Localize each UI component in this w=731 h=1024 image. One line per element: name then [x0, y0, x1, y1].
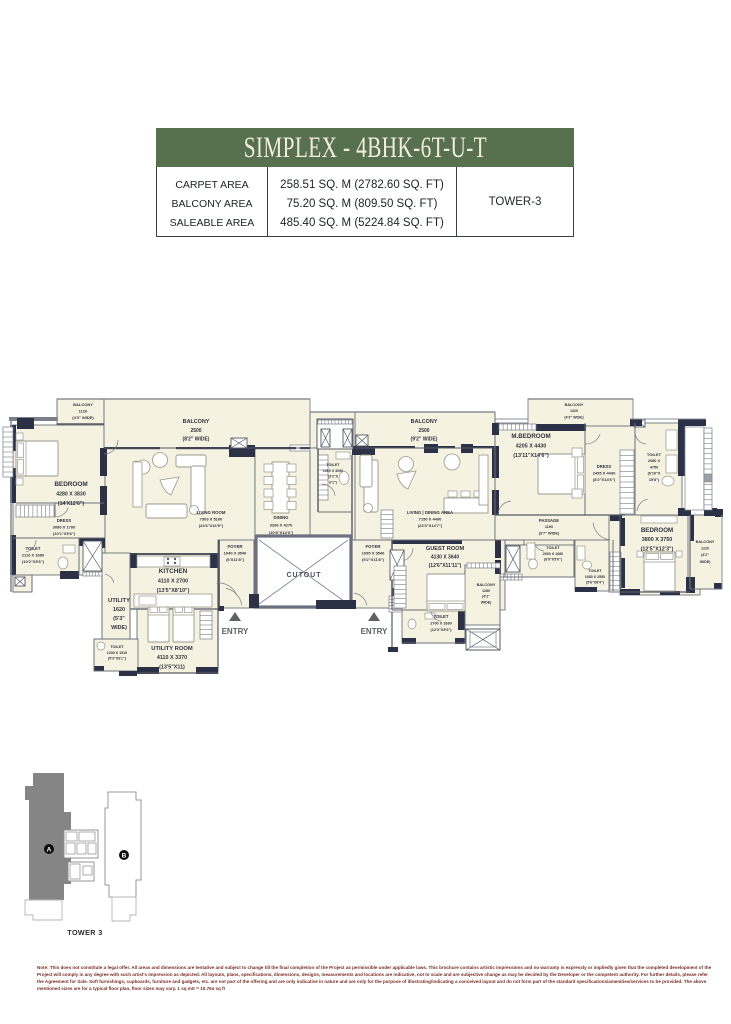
svg-text:(10'2"X5'6"): (10'2"X5'6"): [22, 559, 45, 564]
svg-text:4130 X 3640: 4130 X 3640: [431, 555, 460, 561]
svg-text:(8'9"X5'6"): (8'9"X5'6"): [544, 558, 563, 562]
svg-text:(6'10"X: (6'10"X: [648, 472, 661, 476]
svg-text:6'1"): 6'1"): [329, 480, 338, 484]
svg-text:BEDROOM: BEDROOM: [641, 527, 673, 534]
svg-text:(13'11"X14'6"): (13'11"X14'6"): [513, 453, 549, 459]
svg-text:4110 X 2700: 4110 X 2700: [158, 578, 188, 584]
svg-text:4280 X 3830: 4280 X 3830: [56, 492, 86, 498]
svg-text:(13'5"X11): (13'5"X11): [159, 664, 185, 670]
svg-text:7150 X 4490: 7150 X 4490: [419, 517, 442, 522]
svg-text:(5'2"X11'8"): (5'2"X11'8"): [362, 557, 385, 562]
svg-text:UTILITY ROOM: UTILITY ROOM: [151, 646, 193, 652]
svg-text:1330 X 1510: 1330 X 1510: [107, 651, 127, 655]
svg-text:(13'5"X8'10"): (13'5"X8'10"): [157, 588, 190, 594]
svg-text:FOYER: FOYER: [365, 544, 381, 549]
svg-text:1040 X 3540: 1040 X 3540: [224, 551, 247, 556]
svg-text:A: A: [47, 847, 52, 854]
svg-text:15'8"): 15'8"): [649, 478, 660, 482]
svg-text:GUEST ROOM: GUEST ROOM: [426, 546, 465, 552]
svg-text:LIVING ROOM: LIVING ROOM: [197, 510, 226, 515]
svg-text:(5'3"X6'1"): (5'3"X6'1"): [108, 657, 127, 661]
svg-text:UTILITY: UTILITY: [108, 598, 130, 604]
svg-text:WIDE): WIDE): [111, 625, 127, 631]
svg-text:BALCONY: BALCONY: [565, 403, 584, 407]
svg-text:(14'X12'6"): (14'X12'6"): [58, 501, 85, 507]
svg-text:(12'3"X5'6"): (12'3"X5'6"): [430, 628, 452, 632]
svg-text:(12'5"X12'3"): (12'5"X12'3"): [641, 546, 674, 552]
svg-text:ENTRY: ENTRY: [222, 627, 249, 636]
svg-text:(6'X11'8"): (6'X11'8"): [226, 557, 244, 562]
svg-text:TOILET: TOILET: [326, 463, 340, 467]
svg-text:(4'3" WIDE): (4'3" WIDE): [564, 415, 584, 419]
svg-text:(4'2": (4'2": [701, 553, 709, 557]
svg-text:1095 X 3540: 1095 X 3540: [362, 551, 385, 556]
svg-text:BEDROOM: BEDROOM: [54, 481, 87, 488]
svg-text:BALCONY: BALCONY: [73, 402, 93, 407]
svg-text:BALCONY: BALCONY: [411, 419, 438, 425]
svg-text:(10'8"X14'0"): (10'8"X14'0"): [269, 530, 294, 535]
svg-text:4110 X 3370: 4110 X 3370: [157, 655, 187, 661]
svg-text:1680 X 2550: 1680 X 2550: [585, 575, 605, 579]
svg-text:TOWER 3: TOWER 3: [67, 928, 102, 937]
svg-text:TOILET: TOILET: [588, 569, 602, 573]
svg-text:(8'2"X14'6"): (8'2"X14'6"): [593, 477, 616, 482]
svg-text:2700 X 1680: 2700 X 1680: [430, 621, 452, 625]
svg-text:DRESS: DRESS: [597, 464, 612, 469]
svg-text:1060 X 3050: 1060 X 3050: [323, 469, 343, 473]
svg-text:(10'1"X5'6"): (10'1"X5'6"): [53, 531, 76, 536]
svg-text:(5'3": (5'3": [113, 616, 125, 622]
svg-text:(23'3"X14'7"): (23'3"X14'7"): [418, 523, 443, 528]
svg-text:DRESS: DRESS: [57, 518, 72, 523]
svg-text:2660 X 1680: 2660 X 1680: [543, 552, 563, 556]
svg-text:FOYER: FOYER: [227, 544, 243, 549]
svg-text:WIDE): WIDE): [700, 560, 711, 564]
svg-text:4205 X 4430: 4205 X 4430: [516, 444, 547, 450]
svg-text:(8'2" WIDE): (8'2" WIDE): [183, 437, 210, 443]
svg-text:TOILET: TOILET: [546, 546, 560, 550]
svg-text:WIDE): WIDE): [481, 600, 492, 604]
svg-text:1280: 1280: [482, 589, 490, 593]
svg-text:2500: 2500: [418, 428, 429, 434]
svg-text:CUTOUT: CUTOUT: [286, 572, 321, 579]
svg-text:(5'6"X8'4"): (5'6"X8'4"): [586, 581, 605, 585]
svg-text:4750: 4750: [650, 465, 658, 469]
svg-text:3266 X 4270: 3266 X 4270: [270, 522, 293, 527]
svg-text:1220: 1220: [701, 547, 709, 551]
svg-text:(3'2"X: (3'2"X: [328, 475, 339, 479]
svg-text:2080 X: 2080 X: [648, 459, 661, 463]
svg-text:KITCHEN: KITCHEN: [159, 568, 188, 575]
svg-text:2495 X 4430: 2495 X 4430: [593, 471, 616, 476]
svg-text:1100: 1100: [545, 525, 553, 529]
svg-text:1620: 1620: [113, 607, 125, 613]
svg-text:M.BEDROOM: M.BEDROOM: [511, 433, 550, 440]
svg-text:BALCONY: BALCONY: [183, 419, 210, 425]
svg-text:1120: 1120: [79, 408, 88, 413]
svg-text:(3'7" WIDE): (3'7" WIDE): [539, 531, 560, 535]
svg-text:2500: 2500: [190, 428, 201, 434]
svg-text:DINING: DINING: [273, 515, 289, 520]
svg-text:3080 X 1700: 3080 X 1700: [53, 525, 76, 530]
svg-text:TOILET: TOILET: [26, 546, 41, 551]
svg-text:3800 X 3750: 3800 X 3750: [642, 537, 673, 543]
svg-text:(12'6"X11'11"): (12'6"X11'11"): [429, 563, 462, 569]
svg-text:(9'2" WIDE): (9'2" WIDE): [411, 437, 438, 443]
svg-text:B: B: [122, 853, 127, 860]
svg-text:BALCONY: BALCONY: [477, 583, 496, 587]
svg-text:TOILET: TOILET: [110, 645, 124, 649]
svg-text:ENTRY: ENTRY: [361, 627, 388, 636]
svg-text:7503 X 5100: 7503 X 5100: [200, 517, 223, 522]
svg-text:2110 X 1680: 2110 X 1680: [22, 553, 45, 558]
svg-text:PASSAGE: PASSAGE: [539, 518, 559, 523]
svg-text:BALCONY: BALCONY: [696, 540, 715, 544]
svg-text:(4'3" WIDE): (4'3" WIDE): [72, 415, 94, 420]
svg-text:(4'2": (4'2": [482, 595, 490, 599]
svg-text:(24'6"X16'9"): (24'6"X16'9"): [199, 523, 224, 528]
svg-text:TOILET: TOILET: [647, 452, 662, 457]
svg-text:TOILET: TOILET: [434, 614, 449, 619]
svg-text:1320: 1320: [570, 409, 578, 413]
svg-text:LIVING | DINING AREA: LIVING | DINING AREA: [407, 510, 453, 515]
